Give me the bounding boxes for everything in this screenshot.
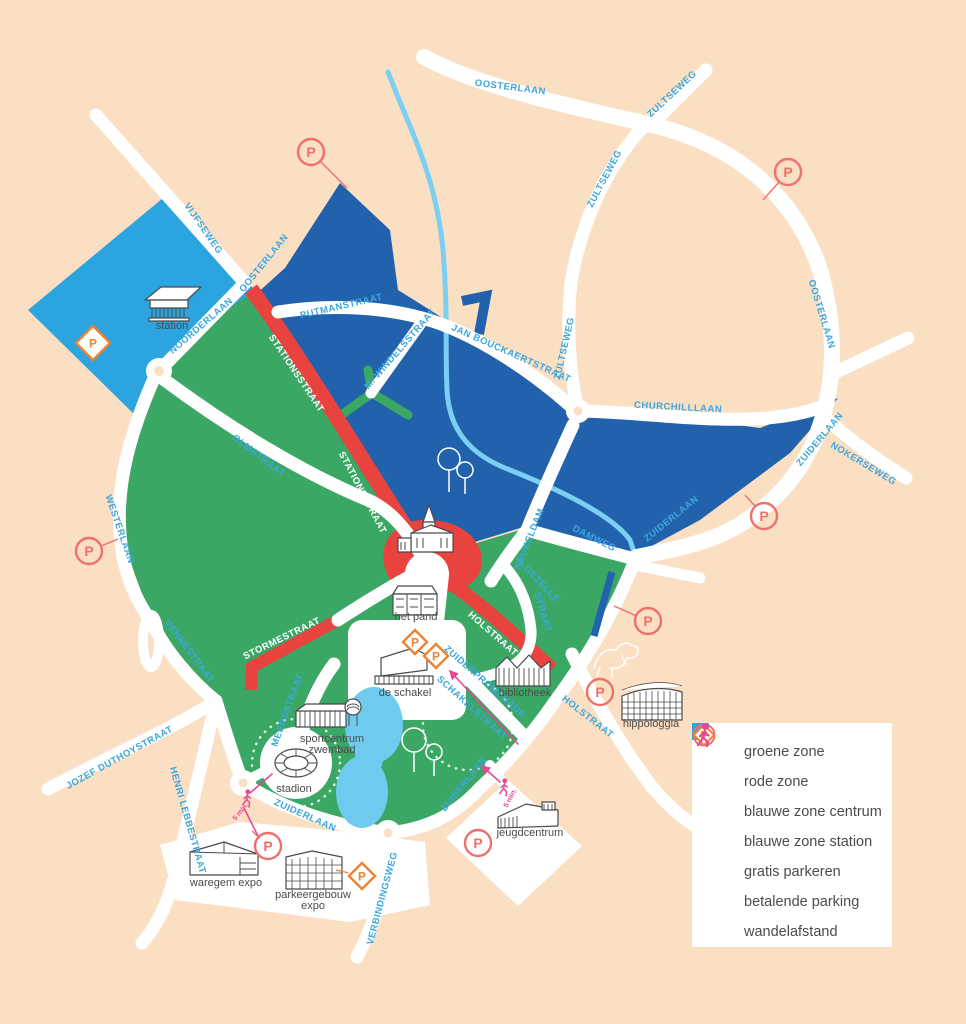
landmark-label-markt: markt <box>416 571 446 583</box>
legend-row-wandelafstand: wandelafstand <box>708 917 892 947</box>
legend-row-groene-zone: groene zone <box>708 737 892 767</box>
legend-row-blauwe-zone-station: blauwe zone station <box>708 827 892 857</box>
svg-text:P: P <box>783 164 792 180</box>
legend-label: betalende parking <box>744 894 859 910</box>
svg-text:P: P <box>595 684 604 700</box>
legend-label: wandelafstand <box>744 924 838 940</box>
legend-label: blauwe zone centrum <box>744 804 882 820</box>
betalende-parking-icon: P <box>708 890 734 914</box>
svg-text:P: P <box>473 835 482 851</box>
svg-text:P: P <box>759 508 768 524</box>
landmark-label-de-schakel: de schakel <box>379 687 432 699</box>
svg-text:P: P <box>263 838 272 854</box>
svg-text:P: P <box>411 636 419 650</box>
waregem-parking-map: PPPPPPPPPPPP 5 min.5 min. OOSTERLAANZULT… <box>0 0 966 1024</box>
wandelafstand-icon <box>708 920 734 944</box>
blauwe-zone-station-swatch <box>708 830 734 854</box>
legend-row-blauwe-zone-centrum: blauwe zone centrum <box>708 797 892 827</box>
rode-zone-swatch <box>708 770 734 794</box>
gratis-parkeren-icon: P <box>708 860 734 884</box>
blauwe-zone-centrum-swatch <box>708 800 734 824</box>
landmark-label-sportcentrum-zwembad: sportcentrumzwembad <box>300 733 364 756</box>
svg-text:P: P <box>432 650 440 664</box>
legend-label: blauwe zone station <box>744 834 872 850</box>
landmark-label-hippologgia: hippologgia <box>623 718 680 730</box>
svg-text:P: P <box>89 337 97 351</box>
legend-label: rode zone <box>744 774 809 790</box>
landmark-label-waregem-expo: waregem expo <box>189 877 262 889</box>
legend-row-rode-zone: rode zone <box>708 767 892 797</box>
legend-label: groene zone <box>744 744 825 760</box>
legend-row-gratis-parkeren: P gratis parkeren <box>708 857 892 887</box>
legend: groene zone rode zone blauwe zone centru… <box>692 723 892 947</box>
legend-row-betalende-parking: P betalende parking <box>708 887 892 917</box>
legend-label: gratis parkeren <box>744 864 841 880</box>
parkeergebouw-building <box>286 851 342 889</box>
svg-text:P: P <box>84 543 93 559</box>
landmark-label-station: station <box>156 320 188 332</box>
landmark-label-jeugdcentrum: jeugdcentrum <box>496 827 564 839</box>
svg-text:P: P <box>358 870 366 884</box>
landmark-label-stadion: stadion <box>276 783 311 795</box>
landmark-label-het-pand: het pand <box>395 611 438 623</box>
landmark-label-bibliotheek: bibliotheek <box>499 687 552 699</box>
svg-text:P: P <box>643 613 652 629</box>
svg-text:P: P <box>306 144 315 160</box>
